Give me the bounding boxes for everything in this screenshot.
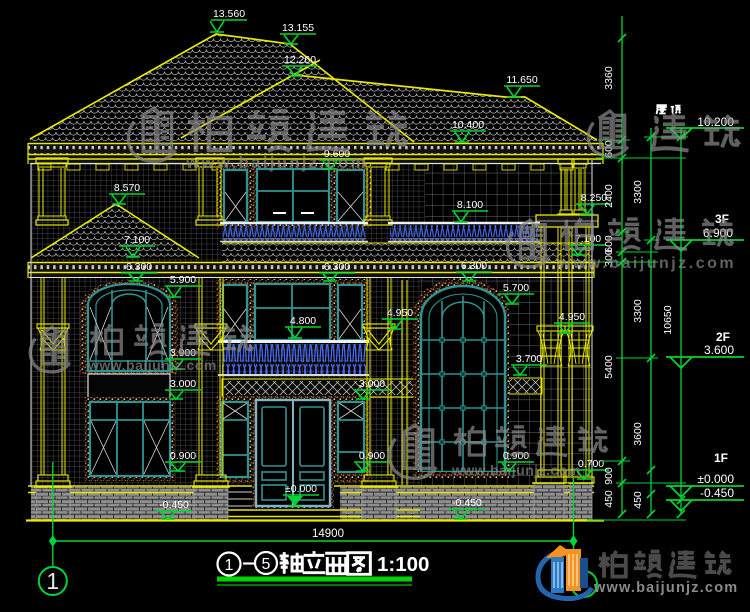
svg-text:1: 1 <box>225 557 234 574</box>
svg-text:±0.000: ±0.000 <box>285 483 317 495</box>
svg-text:12.260: 12.260 <box>284 54 316 66</box>
svg-text:6.300: 6.300 <box>461 260 487 272</box>
svg-text:8.570: 8.570 <box>114 182 140 194</box>
svg-text:3.000: 3.000 <box>359 378 385 390</box>
svg-text:0.900: 0.900 <box>170 450 196 462</box>
svg-text:-0.450: -0.450 <box>159 499 189 511</box>
svg-text:5.700: 5.700 <box>503 282 529 294</box>
svg-text:5.900: 5.900 <box>170 274 196 286</box>
svg-text:10.400: 10.400 <box>452 119 484 131</box>
svg-text:13.155: 13.155 <box>282 22 314 34</box>
svg-text:www.baijunjz.com: www.baijunjz.com <box>185 153 368 172</box>
svg-text:5400: 5400 <box>603 355 615 379</box>
svg-text:14900: 14900 <box>312 528 344 540</box>
svg-text:www.baijunjz.com: www.baijunjz.com <box>451 462 581 478</box>
svg-text:1:100: 1:100 <box>377 553 429 576</box>
svg-text:3300: 3300 <box>632 299 644 323</box>
svg-text:7.100: 7.100 <box>124 234 150 246</box>
svg-text:-0.450: -0.450 <box>700 486 734 500</box>
svg-text:-0.450: -0.450 <box>452 497 482 509</box>
svg-text:1F: 1F <box>714 451 728 465</box>
svg-text:6.300: 6.300 <box>126 261 152 273</box>
svg-text:4.950: 4.950 <box>387 307 413 319</box>
svg-text:0.900: 0.900 <box>359 450 385 462</box>
svg-text:6.300: 6.300 <box>324 261 350 273</box>
svg-text:900: 900 <box>603 467 615 485</box>
svg-text:3.000: 3.000 <box>170 378 196 390</box>
svg-text:±0.000: ±0.000 <box>697 472 734 486</box>
svg-text:3.700: 3.700 <box>516 353 542 365</box>
svg-text:4.950: 4.950 <box>559 311 585 323</box>
svg-text:10650: 10650 <box>662 305 674 334</box>
svg-text:8.100: 8.100 <box>457 199 483 211</box>
svg-text:5: 5 <box>262 556 271 573</box>
svg-text:1: 1 <box>46 568 59 594</box>
svg-text:13.560: 13.560 <box>213 8 245 20</box>
svg-text:450: 450 <box>603 490 615 508</box>
svg-text:www.baijunjz.com: www.baijunjz.com <box>593 580 738 596</box>
svg-text:3300: 3300 <box>632 180 644 204</box>
svg-text:4.800: 4.800 <box>290 315 316 327</box>
svg-text:3600: 3600 <box>632 422 644 446</box>
svg-text:3360: 3360 <box>603 66 615 90</box>
svg-text:0.700: 0.700 <box>578 458 604 470</box>
svg-text:2400: 2400 <box>603 184 615 208</box>
svg-text:450: 450 <box>632 491 644 509</box>
svg-text:11.650: 11.650 <box>506 74 537 86</box>
svg-text:2F: 2F <box>716 330 730 344</box>
svg-text:www.baijunjz.com: www.baijunjz.com <box>557 255 736 272</box>
svg-text:www.baijunjz.com: www.baijunjz.com <box>87 357 217 373</box>
svg-text:3.600: 3.600 <box>704 343 734 357</box>
